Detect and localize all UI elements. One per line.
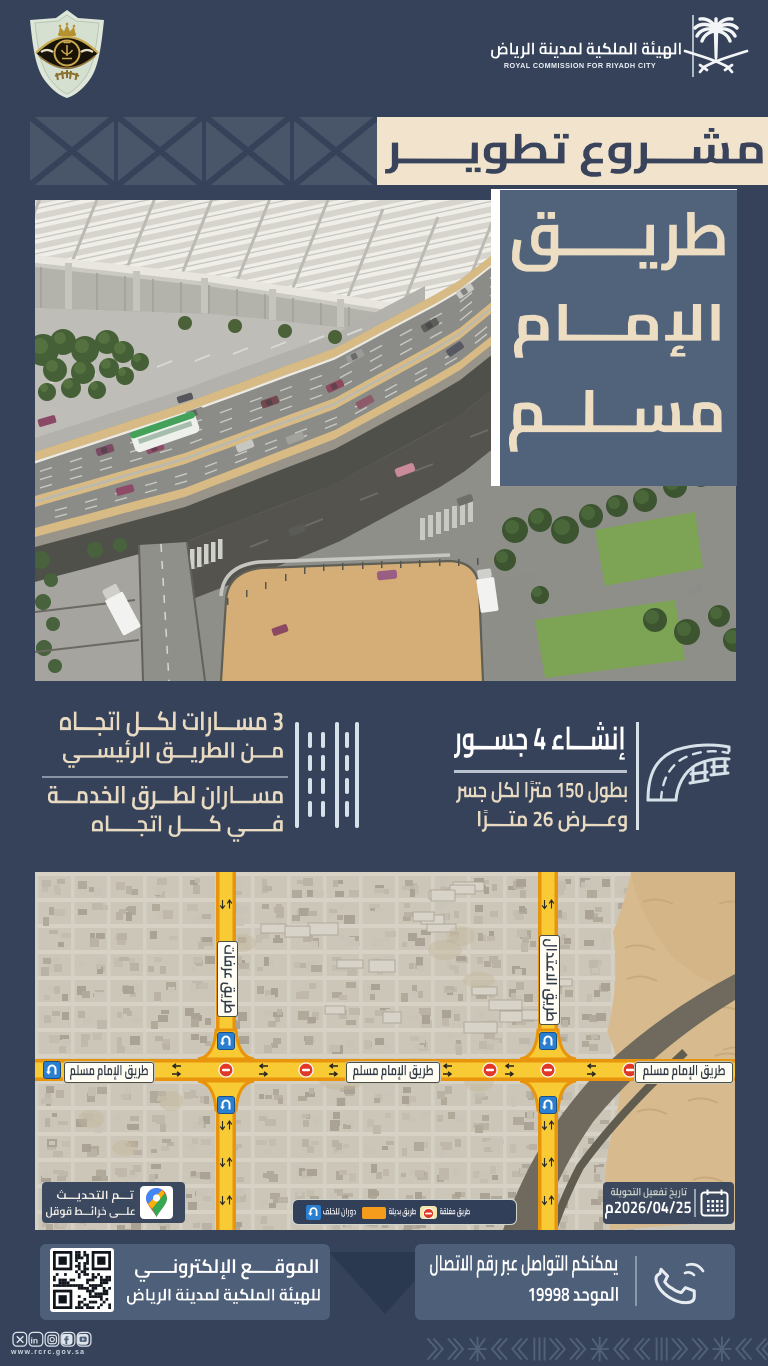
svg-text:in: in bbox=[30, 1335, 38, 1345]
